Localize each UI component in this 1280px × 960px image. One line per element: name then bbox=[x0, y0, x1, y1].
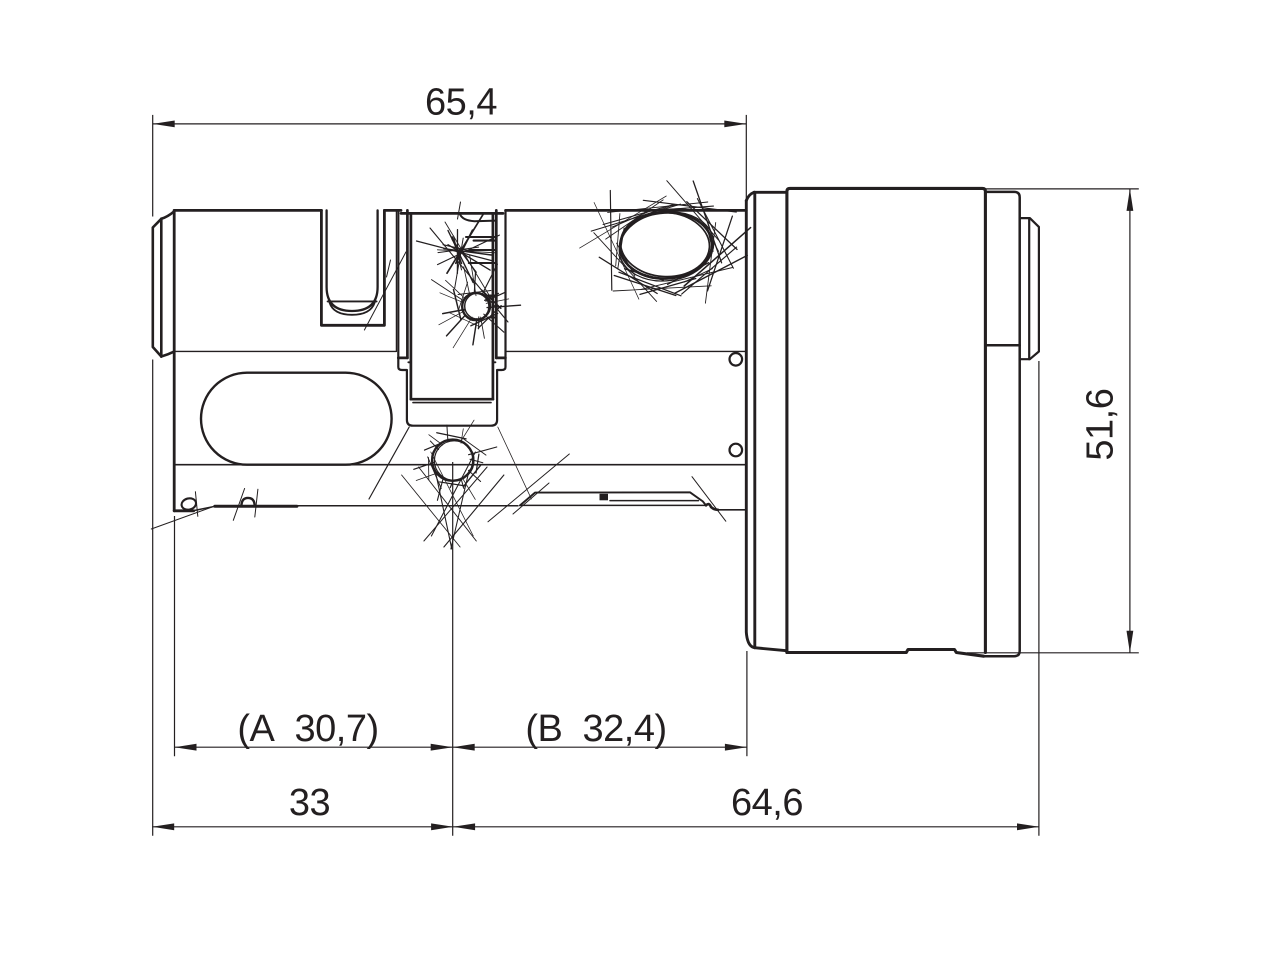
svg-text:(A 30,7): (A 30,7) bbox=[237, 708, 378, 750]
svg-text:33: 33 bbox=[289, 782, 330, 824]
svg-text:65,4: 65,4 bbox=[425, 82, 497, 124]
svg-text:64,6: 64,6 bbox=[731, 782, 803, 824]
svg-text:(B 32,4): (B 32,4) bbox=[525, 708, 666, 750]
svg-text:51,6: 51,6 bbox=[1080, 389, 1122, 461]
